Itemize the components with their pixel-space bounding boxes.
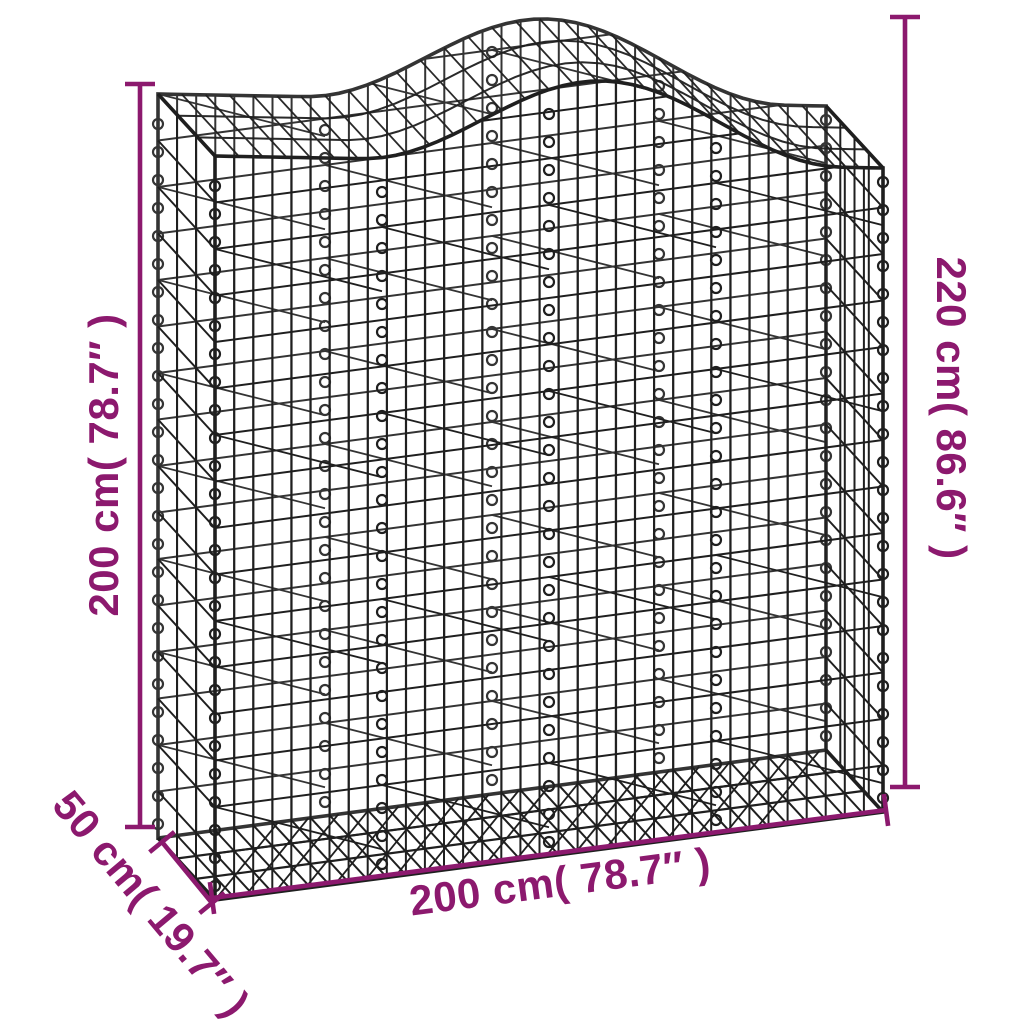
height-right-label: 220 cm( 86.6″ ) [927,256,975,559]
height-dimension-left [125,84,155,827]
product-dimension-diagram: 200 cm( 78.7″ ) 220 cm( 86.6″ ) 200 cm( … [0,0,1024,1024]
height-left-label: 200 cm( 78.7″ ) [80,313,128,616]
gabion-basket-illustration [153,0,888,900]
height-dimension-right [890,17,920,787]
